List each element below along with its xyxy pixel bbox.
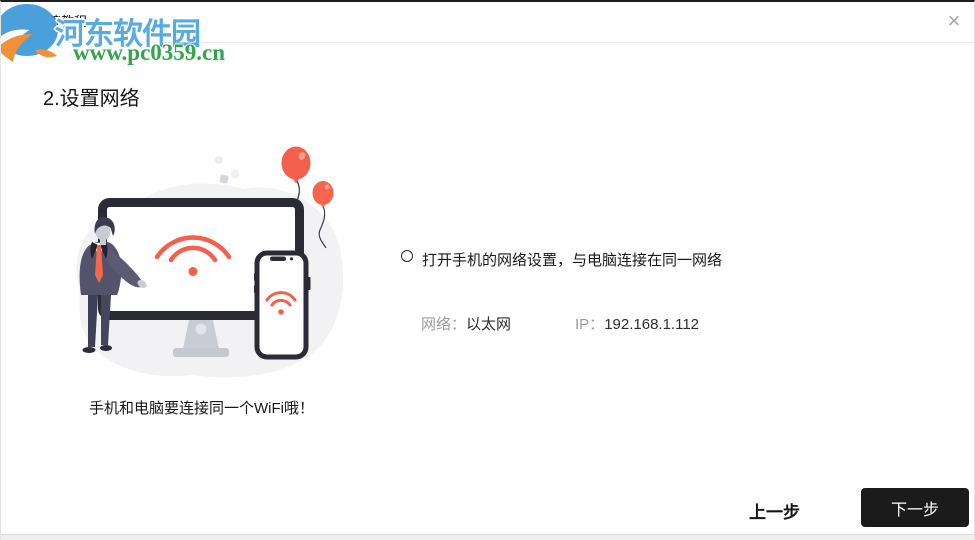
network-label: 网络： <box>421 316 466 333</box>
close-icon[interactable]: × <box>940 7 968 35</box>
instruction-text: 打开手机的网络设置，与电脑连接在同一网络 <box>422 249 722 270</box>
next-step-button[interactable]: 下一步 <box>861 488 969 527</box>
window-title: 安卓连接教程 <box>9 11 87 30</box>
ip-info: IP：192.168.1.112 <box>575 313 699 334</box>
decor-dots <box>215 156 240 184</box>
ip-label: IP： <box>575 316 604 333</box>
tutorial-dialog: 安卓连接教程 × 河东软件园 www.pc0359.cn 2.设置网络 <box>0 0 975 540</box>
window-bottom-edge <box>1 534 974 540</box>
network-illustration <box>51 127 351 387</box>
phone <box>254 253 311 357</box>
title-bar: 安卓连接教程 × <box>1 2 974 43</box>
radio-circle-icon <box>401 250 413 262</box>
watermark-site-url: www.pc0359.cn <box>73 40 225 66</box>
illustration-caption: 手机和电脑要连接同一个WiFi哦！ <box>89 397 314 418</box>
step-heading: 2.设置网络 <box>43 82 140 111</box>
network-value: 以太网 <box>466 316 511 333</box>
network-info: 网络：以太网 <box>421 313 511 334</box>
ip-value: 192.168.1.112 <box>604 316 699 333</box>
previous-step-button[interactable]: 上一步 <box>749 498 800 523</box>
